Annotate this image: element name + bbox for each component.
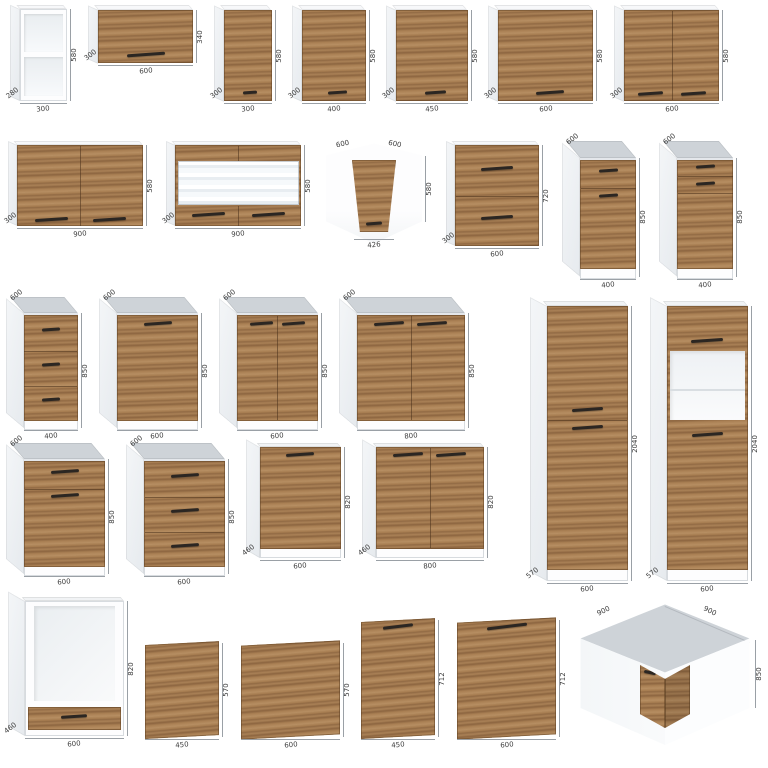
dimension-width-line: 600 bbox=[260, 560, 341, 570]
door-handle bbox=[127, 52, 165, 58]
dimension-width-label: 450 bbox=[391, 742, 405, 750]
cabinet-front bbox=[580, 158, 636, 279]
base-unit-800-two-door: 850800600 bbox=[339, 296, 479, 443]
cabinet-door bbox=[98, 10, 193, 64]
cabinet-front bbox=[498, 10, 593, 102]
dimension-depth-label: 460 bbox=[3, 722, 18, 736]
cabinet-front bbox=[175, 145, 301, 226]
door-handle bbox=[436, 452, 466, 457]
oven-housing-base-600: 820600460 bbox=[8, 596, 138, 752]
door-handle bbox=[599, 193, 618, 197]
base-unit-600-two-door: 850600600 bbox=[219, 296, 332, 443]
dimension-width-label: 400 bbox=[327, 106, 341, 114]
dimension-height-label: 570 bbox=[223, 683, 230, 696]
door-handle bbox=[42, 327, 61, 331]
cabinet-side-panel bbox=[659, 142, 677, 276]
wall-unit-900-two-door: 580900300 bbox=[8, 140, 158, 242]
base-unit-600-drawer-door: 850600600 bbox=[6, 442, 119, 589]
cabinet-front bbox=[547, 306, 628, 581]
cabinet-front bbox=[357, 313, 465, 430]
dimension-width-line: 900 bbox=[175, 228, 301, 238]
cabinet-door bbox=[224, 10, 271, 102]
flap-wall-unit-600-720: 720600300 bbox=[446, 140, 554, 262]
door-handle bbox=[50, 469, 78, 474]
tall-units-column: 20406005702040600570 bbox=[530, 300, 762, 597]
dimension-height-line: 850 bbox=[639, 158, 650, 277]
dimension-width-label: 600 bbox=[57, 578, 71, 586]
door-handle bbox=[93, 217, 126, 222]
cabinet-front bbox=[224, 10, 271, 102]
door-split-line bbox=[678, 176, 733, 177]
door-handle bbox=[286, 452, 314, 457]
dimension-width-line: 600 bbox=[667, 583, 748, 593]
dimension-width-label: 300 bbox=[241, 106, 255, 114]
dishwasher-front-600-712: 712600 bbox=[457, 618, 570, 752]
dimension-width-line: 600 bbox=[98, 65, 193, 75]
dimension-width-line: 800 bbox=[357, 430, 465, 440]
cabinet-door bbox=[302, 10, 365, 102]
door-split-line bbox=[24, 351, 77, 352]
dimension-width-label: 600 bbox=[67, 741, 81, 749]
door-handle bbox=[252, 212, 285, 217]
door-handle bbox=[243, 91, 257, 95]
base-unit-600-door-no-top: 820600460 bbox=[246, 442, 355, 573]
door-split-line bbox=[548, 420, 627, 421]
front-panel-600-570: 570600 bbox=[241, 641, 354, 752]
dimension-height-line: 580 bbox=[304, 145, 315, 226]
dimension-width-line: 300 bbox=[20, 103, 67, 113]
cabinet-side-panel bbox=[562, 142, 580, 276]
dimension-height-label: 570 bbox=[344, 683, 351, 696]
cabinet-front bbox=[17, 145, 143, 226]
dimension-width-line: 450 bbox=[361, 739, 435, 749]
cabinet-front bbox=[667, 306, 748, 581]
dimension-width-line: 600 bbox=[624, 103, 719, 113]
dimension-height-line: 720 bbox=[542, 145, 553, 246]
open-shelf-wall-unit-300: 580300280 bbox=[10, 4, 82, 117]
door-handle bbox=[638, 91, 663, 96]
door-split-line bbox=[277, 316, 278, 419]
door-handle bbox=[691, 338, 724, 343]
door-split-line bbox=[238, 146, 239, 161]
door-handle bbox=[481, 215, 513, 220]
dimension-height-line: 850 bbox=[201, 313, 212, 428]
door-handle bbox=[696, 165, 715, 169]
dimension-height-line: 570 bbox=[222, 643, 233, 737]
dimension-width-line: 426 bbox=[354, 239, 394, 249]
cabinet-side-panel bbox=[8, 591, 25, 736]
cabinet-door bbox=[624, 10, 719, 102]
door-handle bbox=[42, 397, 61, 401]
wall-corner-base-row: 5809003005809003006006005804267206003008… bbox=[8, 140, 748, 292]
cabinet-front bbox=[24, 459, 105, 576]
front-panel-450-570: 570450 bbox=[145, 641, 234, 752]
dimension-height-label: 850 bbox=[322, 364, 329, 377]
cabinet-side-panel bbox=[6, 444, 24, 574]
base-units-row-2: 850600600850600600820600460820800460 bbox=[6, 442, 498, 589]
dimension-width-label: 300 bbox=[36, 105, 50, 113]
cabinet-door bbox=[376, 447, 484, 549]
dimension-width-line: 600 bbox=[457, 739, 556, 749]
wall-unit-300: 580300300 bbox=[214, 4, 286, 117]
dimension-width-line: 600 bbox=[547, 583, 628, 593]
cabinet-top-face bbox=[343, 297, 465, 313]
dimension-depth-label: 460 bbox=[357, 543, 372, 557]
door-split-line bbox=[411, 316, 412, 419]
door-handle bbox=[143, 321, 171, 326]
cabinet-side-panel bbox=[339, 298, 357, 428]
dimension-height-label: 850 bbox=[82, 364, 89, 377]
appliance-niche bbox=[670, 351, 745, 420]
door-handle bbox=[170, 543, 198, 548]
kitchen-cabinet-catalog: 5803002803406003005803003005804003005804… bbox=[0, 0, 768, 768]
base-unit-600-three-drawers: 850600600 bbox=[126, 442, 239, 589]
open-compartment bbox=[24, 14, 64, 52]
cabinet-front bbox=[98, 10, 193, 64]
dimension-width-label: 600 bbox=[580, 586, 594, 594]
oven-niche bbox=[34, 606, 115, 701]
base-unit-400-three-drawers: 850400600 bbox=[6, 296, 92, 443]
dimension-right-edge-label: 900 bbox=[702, 605, 717, 617]
base-unit-400-two-drawer-door: 850400600 bbox=[659, 140, 748, 292]
dimension-width-line: 600 bbox=[25, 738, 124, 748]
dimension-height-line: 580 bbox=[425, 156, 436, 222]
dimension-width-line: 600 bbox=[455, 248, 539, 258]
dimension-height-label: 580 bbox=[597, 49, 604, 62]
cabinet-front bbox=[117, 313, 198, 430]
door-handle bbox=[393, 452, 423, 457]
cabinet-side-panel bbox=[219, 298, 237, 428]
dimension-height-label: 580 bbox=[472, 49, 479, 62]
cabinet-front bbox=[455, 145, 539, 246]
dimension-width-label: 600 bbox=[139, 68, 153, 76]
dimension-height-label: 850 bbox=[640, 211, 647, 224]
base-units-row-1: 850400600850600600850600600850800600 bbox=[6, 296, 479, 443]
dimension-height-line: 580 bbox=[471, 10, 482, 102]
base-unit-800-two-door-no-top: 820800460 bbox=[362, 442, 498, 573]
door-split-line bbox=[672, 11, 673, 101]
dimension-width-line: 600 bbox=[241, 739, 340, 749]
dimension-width-label: 900 bbox=[231, 231, 245, 239]
tall-oven-housing-600: 2040600570 bbox=[650, 300, 762, 597]
dimension-width-label: 600 bbox=[700, 586, 714, 594]
door-handle bbox=[417, 320, 447, 325]
door-split-line bbox=[456, 196, 538, 197]
cabinet-door bbox=[677, 160, 733, 269]
door-handle bbox=[366, 221, 382, 225]
door-split-line bbox=[145, 532, 224, 533]
flap-wall-unit-600: 340600300 bbox=[88, 4, 208, 79]
dimension-left-edge-label: 900 bbox=[596, 605, 611, 617]
dimension-width-label: 600 bbox=[490, 250, 504, 258]
dimension-width-line: 450 bbox=[396, 103, 467, 113]
dimension-width-line: 600 bbox=[144, 576, 225, 586]
front-panel bbox=[361, 618, 435, 739]
dimension-height-line: 2040 bbox=[751, 306, 762, 581]
dimension-height-label: 580 bbox=[723, 49, 730, 62]
door-split-line bbox=[145, 497, 224, 498]
cabinet-door bbox=[144, 461, 225, 567]
dimension-width-label: 600 bbox=[270, 432, 284, 440]
bottom-row: 8206004605704505706007124507126009009008… bbox=[8, 596, 765, 752]
cabinet-door bbox=[547, 306, 628, 570]
open-compartment bbox=[24, 57, 64, 95]
cabinet-front bbox=[624, 10, 719, 102]
dimension-height-line: 712 bbox=[559, 620, 570, 737]
dimension-height-line: 820 bbox=[127, 601, 138, 736]
dimension-height-label: 850 bbox=[756, 667, 763, 680]
dimension-width-line: 300 bbox=[224, 103, 271, 113]
dimension-width-label: 600 bbox=[293, 562, 307, 570]
door-handle bbox=[487, 622, 527, 630]
door-handle bbox=[572, 407, 603, 412]
door-handle bbox=[696, 181, 715, 185]
wall-unit-450: 580450300 bbox=[386, 4, 482, 117]
dimension-height-line: 580 bbox=[596, 10, 607, 102]
door-handle bbox=[536, 90, 565, 95]
cabinet-front bbox=[24, 313, 78, 430]
cabinet-front bbox=[25, 601, 124, 736]
front-panel bbox=[145, 641, 219, 739]
dimension-height-label: 850 bbox=[469, 364, 476, 377]
dimension-height-line: 850 bbox=[468, 313, 479, 428]
door-split-line bbox=[24, 386, 77, 387]
dimension-width-line: 900 bbox=[17, 228, 143, 238]
front-panel bbox=[457, 617, 556, 740]
dimension-height-line: 570 bbox=[343, 643, 354, 737]
cabinet-side-panel bbox=[6, 298, 24, 428]
dimension-height-line: 850 bbox=[755, 640, 766, 708]
cabinet-front bbox=[144, 459, 225, 576]
niche-shelf bbox=[670, 389, 745, 391]
cabinet-front bbox=[237, 313, 318, 430]
door-handle bbox=[282, 321, 305, 326]
door-handle bbox=[481, 166, 513, 171]
dimension-height-label: 580 bbox=[71, 49, 78, 62]
cabinet-door bbox=[260, 447, 341, 549]
dimension-height-line: 2040 bbox=[631, 306, 642, 581]
glass-panel bbox=[178, 161, 299, 205]
door-handle bbox=[692, 432, 723, 437]
dimension-width-label: 800 bbox=[404, 432, 418, 440]
dimension-width-line: 400 bbox=[677, 279, 733, 289]
dimension-width-line: 400 bbox=[580, 279, 636, 289]
dimension-height-line: 820 bbox=[344, 447, 355, 558]
door-handle bbox=[599, 168, 618, 172]
dimension-height-label: 2040 bbox=[632, 435, 639, 453]
cabinet-door bbox=[117, 315, 198, 421]
dimension-width-label: 400 bbox=[699, 281, 713, 289]
cabinet-top-face bbox=[223, 297, 318, 313]
door-handle bbox=[42, 362, 61, 366]
cabinet-front bbox=[396, 10, 467, 102]
dimension-height-label: 580 bbox=[426, 182, 433, 195]
door-handle bbox=[374, 320, 404, 325]
wall-units-row: 5803002803406003005803003005804003005804… bbox=[10, 4, 734, 117]
dimension-height-line: 580 bbox=[275, 10, 286, 102]
dimension-height-line: 580 bbox=[369, 10, 380, 102]
front-panel bbox=[241, 640, 340, 739]
wall-unit-600: 580600300 bbox=[488, 4, 608, 117]
dimension-height-label: 850 bbox=[737, 211, 744, 224]
dimension-width-line: 600 bbox=[498, 103, 593, 113]
dimension-height-label: 850 bbox=[202, 364, 209, 377]
dimension-width-line: 800 bbox=[376, 560, 484, 570]
dimension-width-label: 426 bbox=[367, 241, 381, 249]
dimension-width-label: 400 bbox=[602, 281, 616, 289]
dimension-height-label: 580 bbox=[276, 49, 283, 62]
dishwasher-front-450-712: 712450 bbox=[361, 618, 450, 752]
cabinet-top-face bbox=[130, 443, 225, 459]
dimension-height-label: 580 bbox=[305, 179, 312, 192]
cabinet-door bbox=[237, 315, 318, 421]
door-handle bbox=[170, 473, 198, 478]
wall-unit-600-two-door: 580600300 bbox=[614, 4, 734, 117]
dimension-width-line: 600 bbox=[24, 576, 105, 586]
dimension-width-label: 600 bbox=[284, 741, 298, 749]
cabinet-side-panel bbox=[99, 298, 117, 428]
dimension-height-line: 850 bbox=[108, 459, 119, 574]
door-split-line bbox=[430, 448, 431, 548]
door-handle bbox=[35, 217, 68, 222]
cabinet-door bbox=[24, 461, 105, 567]
dimension-height-line: 580 bbox=[70, 9, 81, 101]
door-handle bbox=[250, 321, 273, 326]
dimension-height-line: 850 bbox=[321, 313, 332, 428]
cabinet-door bbox=[498, 10, 593, 102]
dimension-height-label: 850 bbox=[109, 510, 116, 523]
dimension-height-label: 720 bbox=[543, 189, 550, 202]
door-handle bbox=[328, 90, 347, 94]
cabinet-door bbox=[357, 315, 465, 421]
cabinet-front bbox=[302, 10, 365, 102]
cabinet-front bbox=[376, 447, 484, 558]
wall-unit-400: 580400300 bbox=[292, 4, 380, 117]
door-handle bbox=[192, 212, 225, 217]
dimension-width-label: 450 bbox=[175, 741, 189, 749]
door-split-line bbox=[678, 193, 733, 194]
cabinet-side-panel bbox=[246, 439, 260, 558]
base-unit-600-door: 850600600 bbox=[99, 296, 212, 443]
tall-unit-600-two-door: 2040600570 bbox=[530, 300, 642, 597]
cabinet-door bbox=[667, 306, 748, 570]
cabinet-door bbox=[175, 145, 301, 226]
dimension-width-line: 400 bbox=[302, 103, 365, 113]
dimension-height-label: 850 bbox=[229, 510, 236, 523]
dimension-height-label: 340 bbox=[197, 30, 204, 43]
dimension-width-label: 450 bbox=[425, 106, 439, 114]
cabinet-side-panel bbox=[126, 444, 144, 574]
door-handle bbox=[383, 623, 413, 630]
door-split-line bbox=[581, 188, 636, 189]
door-handle bbox=[572, 425, 603, 430]
door-handle bbox=[50, 493, 78, 498]
dimension-height-line: 850 bbox=[736, 158, 747, 277]
cabinet-door bbox=[580, 160, 636, 269]
dimension-width-label: 900 bbox=[73, 231, 87, 239]
door-split-line bbox=[80, 146, 81, 226]
dimension-width-label: 800 bbox=[423, 562, 437, 570]
cabinet-door bbox=[17, 145, 143, 226]
glass-wall-unit-900: 580900300 bbox=[166, 140, 316, 242]
dimension-width-label: 600 bbox=[665, 106, 679, 114]
dimension-depth-label: 460 bbox=[241, 543, 256, 557]
door-split-line bbox=[238, 206, 239, 225]
cabinet-door bbox=[396, 10, 467, 102]
cabinet-side-panel bbox=[650, 297, 667, 581]
dimension-height-label: 820 bbox=[128, 662, 135, 675]
door-split-line bbox=[25, 489, 104, 490]
cabinet-top-face bbox=[10, 443, 105, 459]
dimension-height-label: 2040 bbox=[752, 435, 759, 453]
cabinet-side-panel bbox=[530, 297, 547, 581]
dimension-width-line: 600 bbox=[237, 430, 318, 440]
dimension-height-label: 820 bbox=[488, 496, 495, 509]
corner-base-unit-900: 900900850 bbox=[577, 600, 765, 752]
cabinet-door bbox=[24, 315, 78, 421]
oven-drawer bbox=[28, 707, 121, 730]
cabinet-door bbox=[455, 145, 539, 246]
dimension-height-line: 820 bbox=[487, 447, 498, 558]
dimension-height-line: 850 bbox=[81, 313, 92, 428]
door-handle bbox=[170, 508, 198, 513]
dimension-width-label: 600 bbox=[177, 578, 191, 586]
cabinet-front bbox=[20, 9, 67, 101]
dimension-height-line: 850 bbox=[228, 459, 239, 574]
dimension-width-label: 400 bbox=[44, 432, 58, 440]
corner-wall-unit-600: 600600580426 bbox=[324, 140, 438, 260]
dimension-width-line: 600 bbox=[117, 430, 198, 440]
door-handle bbox=[61, 714, 87, 719]
dimension-height-label: 712 bbox=[439, 672, 446, 685]
cabinet-side-panel bbox=[362, 439, 376, 558]
dimension-width-line: 450 bbox=[145, 739, 219, 749]
dimension-left-edge-label: 600 bbox=[335, 140, 350, 150]
base-unit-400-drawer-door: 850400600 bbox=[562, 140, 651, 292]
dimension-width-label: 600 bbox=[500, 742, 514, 750]
cabinet-front bbox=[677, 158, 733, 279]
dimension-height-label: 712 bbox=[560, 672, 567, 685]
door-handle bbox=[425, 90, 446, 94]
cabinet-top-face bbox=[103, 297, 198, 313]
dimension-width-label: 600 bbox=[150, 432, 164, 440]
dimension-width-line: 400 bbox=[24, 430, 78, 440]
door-handle bbox=[681, 91, 706, 96]
cabinet-front bbox=[260, 447, 341, 558]
dimension-height-label: 820 bbox=[345, 496, 352, 509]
dimension-height-line: 712 bbox=[438, 620, 449, 737]
dimension-height-line: 580 bbox=[722, 10, 733, 102]
dimension-height-label: 580 bbox=[147, 179, 154, 192]
dimension-width-label: 600 bbox=[539, 106, 553, 114]
dimension-height-line: 340 bbox=[196, 10, 207, 64]
dimension-height-line: 580 bbox=[146, 145, 157, 226]
dimension-height-label: 580 bbox=[370, 49, 377, 62]
